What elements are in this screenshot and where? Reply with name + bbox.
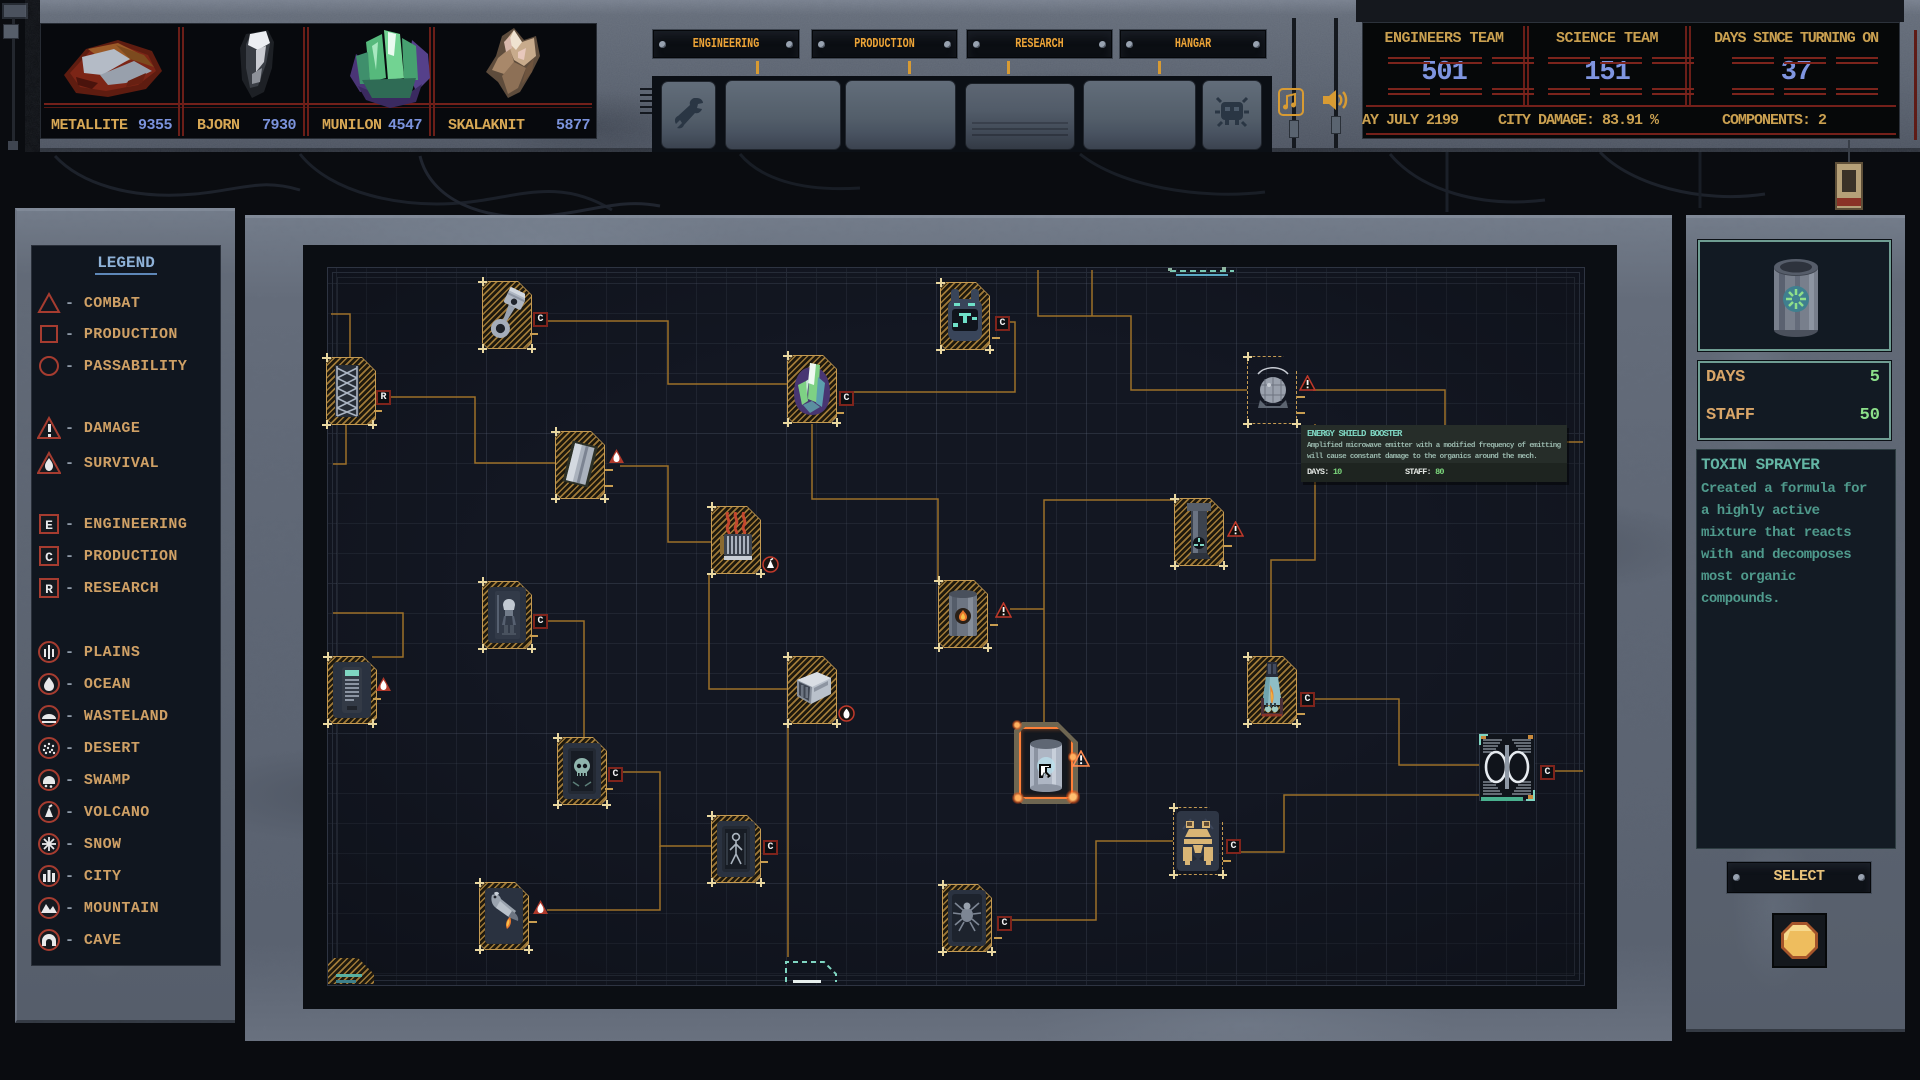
svg-text:R: R bbox=[45, 582, 53, 597]
svg-text:E: E bbox=[45, 518, 53, 533]
svg-text:C: C bbox=[45, 550, 53, 565]
